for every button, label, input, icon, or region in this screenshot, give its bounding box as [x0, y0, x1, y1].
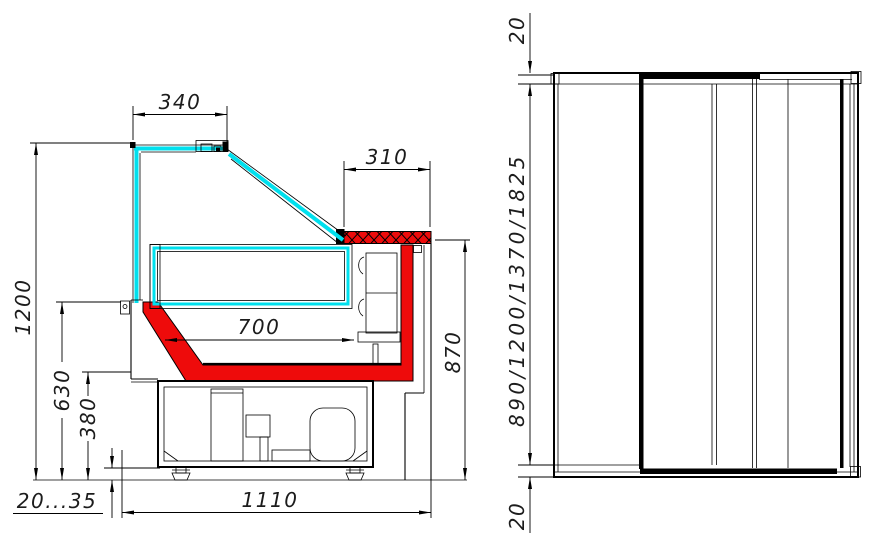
dim-worktop-depth-label: 310 [366, 145, 409, 169]
dim-overall-height-label: 1200 [11, 279, 35, 336]
worktop-bracket [414, 246, 422, 253]
slanted-glass [229, 154, 343, 240]
bumper-clip [121, 301, 130, 314]
dim-canopy-width: 340 [133, 90, 227, 146]
deck-glass-liner [154, 248, 348, 304]
glass-panels [130, 142, 346, 303]
compressor [310, 408, 355, 461]
dim-bottom-band-label: 20 [505, 502, 529, 530]
dim-height-stack: 20 890/1200/1370/1825 20 [505, 13, 554, 533]
shelf-bracket [358, 332, 400, 342]
dim-canopy-width-label: 340 [159, 90, 202, 114]
valve-unit [246, 415, 270, 461]
dim-display-well-depth-label: 700 [238, 315, 281, 339]
shelf-hook-upper [359, 257, 364, 274]
side-section-view: 340 310 1200 630 380 700 [11, 90, 470, 518]
dim-top-band-label: 20 [505, 16, 529, 44]
bottom-band [554, 465, 861, 477]
rear-elevation-view: 20 890/1200/1370/1825 20 [505, 13, 861, 533]
case-outline [554, 73, 858, 477]
electrical-panel [211, 389, 243, 461]
worktop-surface [336, 229, 431, 244]
rear-interior [358, 253, 400, 364]
canopy-lamp-housing [196, 141, 229, 153]
sliding-door-panels [558, 75, 854, 472]
dim-worktop-height-label: 870 [441, 331, 465, 374]
dim-overall-height: 1200 [11, 143, 133, 480]
dim-length-options-label: 890/1200/1370/1825 [505, 153, 529, 427]
dim-front-panel-height: 630 [50, 302, 121, 480]
dim-base-height: 380 [76, 372, 131, 480]
dim-base-height-label: 380 [76, 397, 100, 440]
adjustable-feet [172, 467, 364, 480]
display-deck [150, 245, 352, 309]
door-frame-left [639, 75, 644, 469]
drawing-canvas: 340 310 1200 630 380 700 [0, 0, 877, 551]
door-frame-right [840, 79, 844, 468]
dim-display-well-depth: 700 [165, 315, 354, 340]
dim-front-panel-height-label: 630 [50, 369, 74, 412]
dim-overall-depth: 1110 [122, 450, 431, 518]
dim-leg-adjust: 20...35 [13, 448, 160, 518]
foot-rear [346, 467, 364, 480]
machine-compartment [158, 381, 373, 467]
foot-front [172, 467, 190, 480]
dim-leg-adjust-label: 20...35 [17, 489, 97, 513]
drain-tray [272, 450, 310, 461]
red-body-profile [143, 245, 413, 381]
technical-drawing-page: 340 310 1200 630 380 700 [0, 0, 877, 551]
dim-overall-depth-label: 1110 [242, 488, 299, 512]
dim-worktop-depth: 310 [344, 145, 430, 227]
shelf-hook-lower [359, 299, 364, 316]
dim-worktop-height: 870 [435, 240, 470, 480]
